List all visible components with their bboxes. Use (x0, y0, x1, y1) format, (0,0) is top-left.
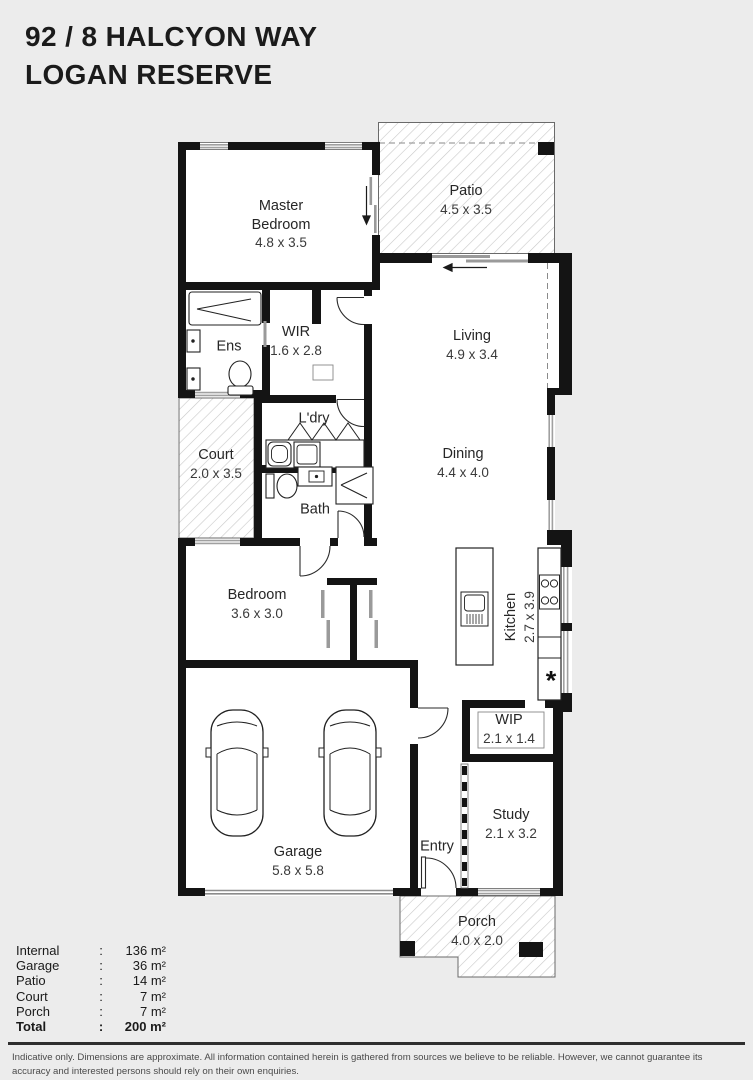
room-label-kitchen: Kitchen 2.7 x 3.9 (502, 591, 538, 643)
legend-row: Patio : 14 m² (16, 973, 166, 988)
legend-row: Garage : 36 m² (16, 958, 166, 973)
legend-colon: : (94, 1004, 108, 1019)
room-name: Kitchen (502, 591, 521, 643)
room-dims: 4.5 x 3.5 (440, 201, 492, 218)
disclaimer-text: Indicative only. Dimensions are approxim… (12, 1051, 739, 1080)
room-name: Porch (451, 913, 503, 932)
room-name: Master Bedroom (233, 197, 329, 234)
legend-row: Court : 7 m² (16, 989, 166, 1004)
room-name: Patio (440, 182, 492, 201)
room-name: L'dry (299, 410, 330, 429)
legend-label: Porch (16, 1004, 94, 1019)
room-name: Bath (300, 501, 330, 520)
legend-colon: : (94, 1019, 108, 1034)
legend-value: 36 m² (108, 958, 166, 973)
room-label-study: Study 2.1 x 3.2 (485, 806, 537, 842)
legend-label: Garage (16, 958, 94, 973)
room-dims: 2.7 x 3.9 (521, 591, 538, 643)
room-name: Living (446, 327, 498, 346)
room-name: Dining (437, 445, 489, 464)
room-dims: 2.1 x 1.4 (483, 730, 535, 747)
cavity-slider-door (461, 764, 468, 888)
room-name: Study (485, 806, 537, 825)
room-label-dining: Dining 4.4 x 4.0 (437, 445, 489, 481)
legend-label: Total (16, 1019, 94, 1034)
room-label-wip: WIP 2.1 x 1.4 (483, 711, 535, 747)
room-label-bedroom: Bedroom 3.6 x 3.0 (228, 586, 287, 622)
legend-row-total: Total : 200 m² (16, 1019, 166, 1034)
toilet-icon (277, 474, 297, 498)
room-name: WIP (483, 711, 535, 730)
legend-colon: : (94, 973, 108, 988)
floorplan-page: 92 / 8 HALCYON WAY LOGAN RESERVE (0, 0, 753, 1080)
room-name: Garage (272, 843, 324, 862)
room-name: Bedroom (228, 586, 287, 605)
legend-label: Court (16, 989, 94, 1004)
legend-colon: : (94, 989, 108, 1004)
room-label-court: Court 2.0 x 3.5 (190, 446, 242, 482)
legend-value: 7 m² (108, 1004, 166, 1019)
room-name: Ens (217, 338, 242, 357)
legend-colon: : (94, 943, 108, 958)
room-name: Entry (420, 838, 454, 857)
fridge-space-marker: * (546, 666, 557, 697)
legend-label: Internal (16, 943, 94, 958)
room-label-garage: Garage 5.8 x 5.8 (272, 843, 324, 879)
room-label-laundry: L'dry (299, 410, 330, 429)
room-name: WIR (270, 323, 322, 342)
legend-value: 136 m² (108, 943, 166, 958)
legend-value: 7 m² (108, 989, 166, 1004)
legend-row: Internal : 136 m² (16, 943, 166, 958)
room-dims: 2.1 x 3.2 (485, 825, 537, 842)
room-label-porch: Porch 4.0 x 2.0 (451, 913, 503, 949)
room-dims: 1.6 x 2.8 (270, 342, 322, 359)
legend-label: Patio (16, 973, 94, 988)
car-icon (206, 710, 268, 836)
area-legend: Internal : 136 m² Garage : 36 m² Patio :… (16, 943, 166, 1034)
room-label-ens: Ens (217, 338, 242, 357)
room-label-living: Living 4.9 x 3.4 (446, 327, 498, 363)
room-dims: 3.6 x 3.0 (228, 605, 287, 622)
room-label-patio: Patio 4.5 x 3.5 (440, 182, 492, 218)
room-dims: 4.4 x 4.0 (437, 464, 489, 481)
legend-row: Porch : 7 m² (16, 1004, 166, 1019)
legend-value: 200 m² (108, 1019, 166, 1034)
legend-value: 14 m² (108, 973, 166, 988)
cooktop-icon (540, 575, 560, 609)
toilet-icon (229, 361, 251, 387)
room-dims: 4.0 x 2.0 (451, 932, 503, 949)
room-label-wir: WIR 1.6 x 2.8 (270, 323, 322, 359)
room-label-entry: Entry (420, 838, 454, 857)
legend-colon: : (94, 958, 108, 973)
room-label-master-bedroom: Master Bedroom 4.8 x 3.5 (233, 197, 329, 251)
floor-plan (0, 0, 753, 1080)
room-dims: 4.9 x 3.4 (446, 346, 498, 363)
room-dims: 2.0 x 3.5 (190, 465, 242, 482)
room-name: Court (190, 446, 242, 465)
footer-divider (8, 1042, 745, 1045)
car-icon (319, 710, 381, 836)
room-dims: 4.8 x 3.5 (233, 234, 329, 251)
room-label-bath: Bath (300, 501, 330, 520)
room-dims: 5.8 x 5.8 (272, 862, 324, 879)
